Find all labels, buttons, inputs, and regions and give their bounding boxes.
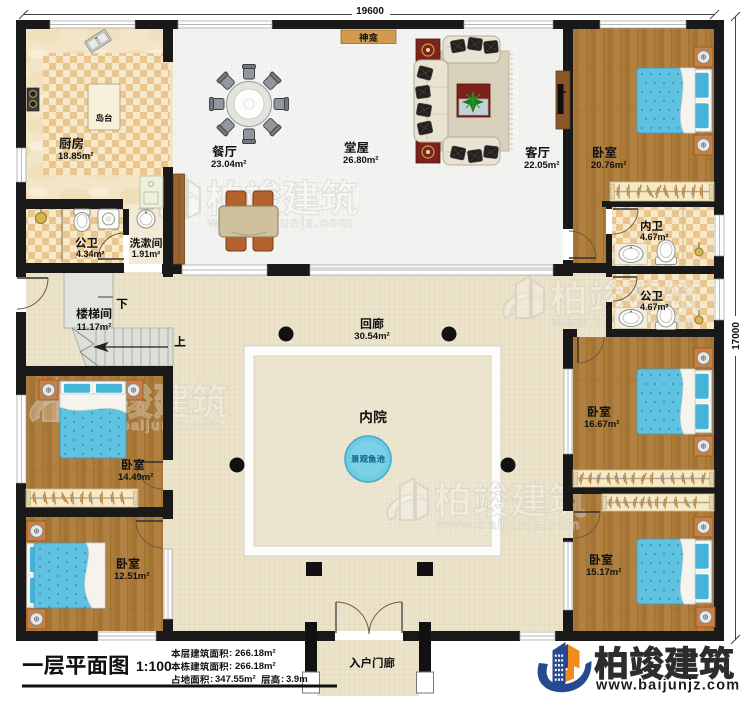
svg-text:4.34m²: 4.34m² [76, 249, 105, 259]
svg-text:4.67m²: 4.67m² [640, 302, 669, 312]
svg-text:1:100: 1:100 [136, 658, 172, 674]
svg-text:1.91m²: 1.91m² [132, 249, 161, 259]
svg-text:23.04m²: 23.04m² [211, 159, 246, 170]
svg-text:266.18m²: 266.18m² [235, 661, 276, 672]
svg-text::: : [229, 648, 232, 659]
svg-text:17000: 17000 [731, 322, 742, 350]
svg-text:30.54m²: 30.54m² [354, 331, 389, 342]
svg-text:20.76m²: 20.76m² [591, 160, 626, 171]
svg-text:26.80m²: 26.80m² [343, 155, 378, 166]
svg-text:15.17m²: 15.17m² [586, 567, 621, 578]
svg-text:11.17m²: 11.17m² [77, 322, 112, 333]
svg-text:19600: 19600 [356, 6, 384, 17]
svg-text::: : [281, 674, 284, 685]
svg-text:4.67m²: 4.67m² [640, 232, 669, 242]
svg-text:3.9m: 3.9m [286, 674, 308, 685]
svg-text::: : [210, 674, 213, 685]
svg-text::: : [229, 661, 232, 672]
svg-text:www.baijunjz.com: www.baijunjz.com [435, 516, 581, 532]
svg-text:18.85m²: 18.85m² [58, 151, 93, 162]
svg-text:www.baijunjz.com: www.baijunjz.com [595, 678, 740, 694]
svg-text:14.49m²: 14.49m² [118, 472, 153, 483]
svg-text:22.05m²: 22.05m² [524, 160, 559, 171]
svg-text:16.67m²: 16.67m² [584, 419, 619, 430]
svg-text:347.55m²: 347.55m² [215, 674, 256, 685]
svg-text:12.51m²: 12.51m² [114, 571, 149, 582]
svg-text:266.18m²: 266.18m² [235, 648, 276, 659]
